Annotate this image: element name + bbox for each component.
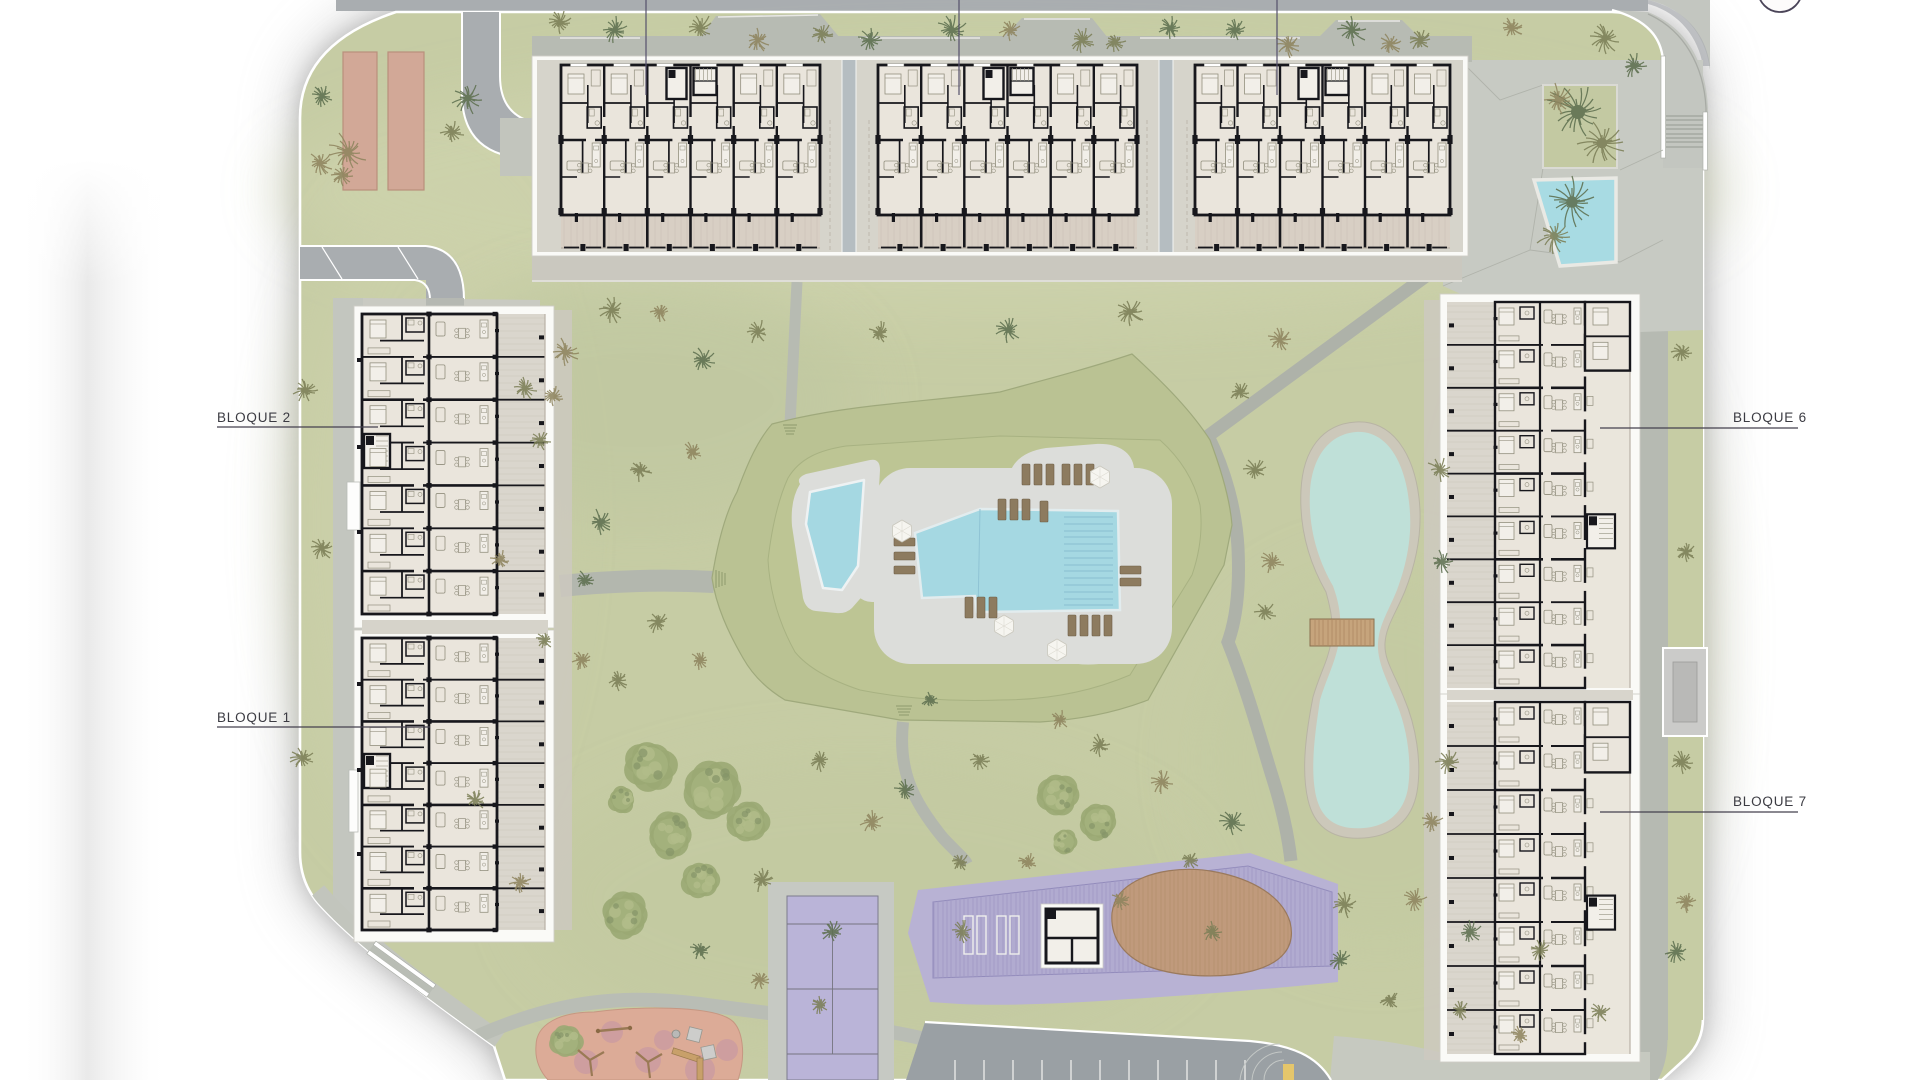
svg-text:BLOQUE 6: BLOQUE 6 <box>1733 410 1807 425</box>
svg-text:BLOQUE 2: BLOQUE 2 <box>217 410 291 425</box>
svg-text:BLOQUE 1: BLOQUE 1 <box>217 710 291 725</box>
svg-text:BLOQUE 7: BLOQUE 7 <box>1733 794 1807 809</box>
